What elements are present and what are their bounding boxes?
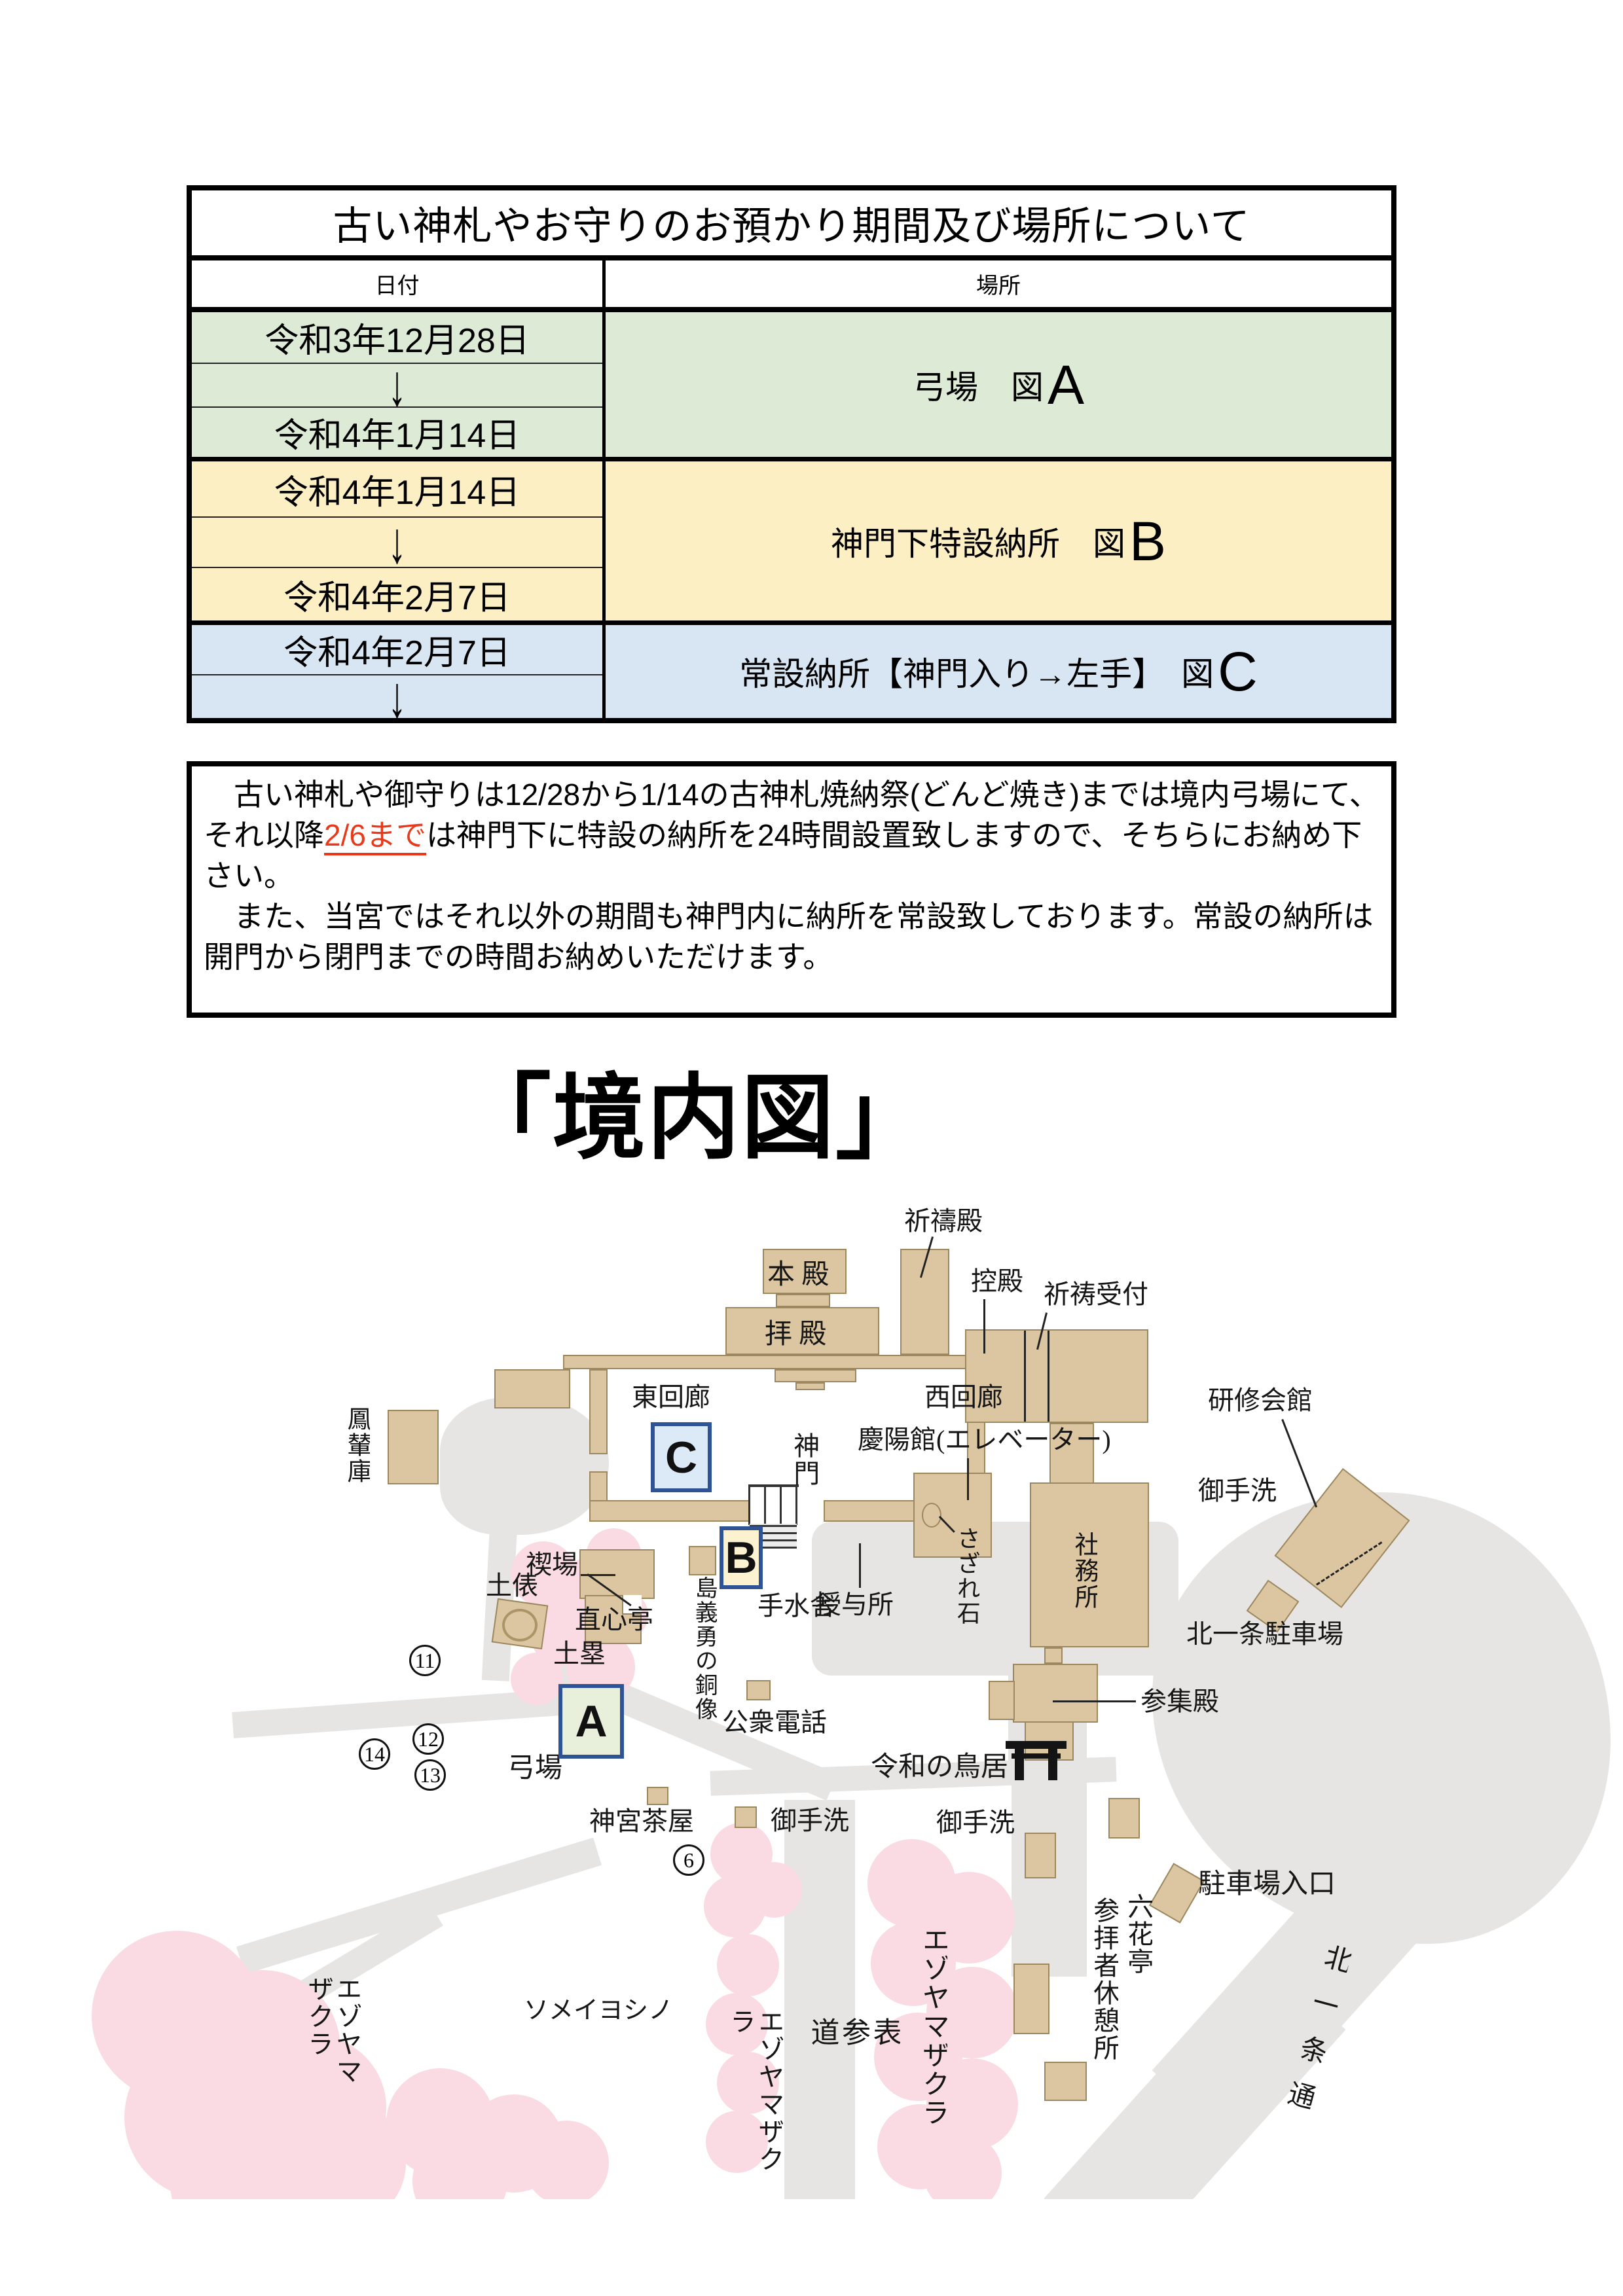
label-nishi-kairo: 西回廊	[924, 1383, 1003, 1411]
label-otearai-east: 御手洗	[1198, 1477, 1277, 1505]
bld-horenko	[388, 1410, 439, 1484]
table-title: 古い神札やお守りのお預かり期間及び場所について	[192, 190, 1391, 260]
bld-sanshuden-1	[1013, 1664, 1098, 1723]
dohyo-ring	[502, 1609, 538, 1641]
bld-corridor-bottom-left	[589, 1500, 775, 1522]
circled-6: 6	[673, 1844, 704, 1876]
page: 古い神札やお守りのお預かり期間及び場所について 日付 場所 令和3年12月28日…	[0, 0, 1623, 2296]
label-otearai-south: 御手洗	[936, 1808, 1015, 1837]
table-header-row: 日付 場所	[192, 260, 1391, 312]
label-honden: 本 殿	[767, 1261, 830, 1290]
bld-corridor-left-upper	[589, 1369, 608, 1454]
date-cell: 令和3年12月28日 ↓ 令和4年1月14日	[192, 312, 606, 457]
circled-14: 14	[359, 1738, 390, 1770]
bld-shamusho-neck	[1044, 1647, 1063, 1664]
deadline-highlight: 2/6まで	[324, 818, 426, 855]
bld-haiden-bump2	[795, 1382, 825, 1390]
bld-haiden-bump	[775, 1369, 856, 1382]
road-plaza-south-2	[1012, 1780, 1087, 1977]
label-jingu-chaya: 神宮茶屋	[589, 1807, 694, 1835]
table-row: 令和4年1月14日 ↓ 令和4年2月7日 神門下特設納所 図B	[192, 461, 1391, 625]
bld-near-torii-2	[1025, 1833, 1056, 1878]
circled-13: 13	[414, 1759, 446, 1791]
bld-corridor-top	[563, 1355, 985, 1369]
bld-otearai-center	[735, 1806, 757, 1828]
leader-juyosho	[859, 1543, 861, 1588]
bld-sanpai-2	[1044, 2062, 1087, 2101]
sazare-stone	[922, 1503, 941, 1528]
label-someiyoshino: ソメイヨシノ	[524, 1998, 673, 2024]
label-haiden: 拝 殿	[765, 1320, 827, 1350]
label-hikaeden: 控殿	[971, 1267, 1023, 1295]
leader-kenshu	[1281, 1419, 1317, 1507]
label-shinmon: 神門	[790, 1432, 818, 1511]
road-west-plaza	[440, 1397, 609, 1535]
bld-near-torii-1	[1108, 1798, 1140, 1839]
label-keiyokan: 慶陽館(エレベーター)	[858, 1426, 1111, 1454]
label-sazareishi: さざれ石	[954, 1526, 979, 1631]
column-header-date: 日付	[192, 260, 606, 307]
label-ezoyama-left: エゾヤマザクラ	[727, 2008, 783, 2199]
grounds-map: 鳳輦庫東回廊西回廊本 殿拝 殿祈禱殿控殿祈祷受付神門慶陽館(エレベーター)授与所…	[79, 1165, 1623, 2199]
date-cell: 令和4年2月7日 ↓	[192, 625, 606, 718]
table-row: 令和4年2月7日 ↓ 常設納所【神門入り→左手】 図C	[192, 625, 1391, 718]
bld-sanpai-1	[1013, 1964, 1049, 2034]
label-horenko: 鳳輦庫	[343, 1406, 370, 1501]
arrow-down-icon: ↓	[192, 516, 602, 567]
label-kenshu-kaikan: 研修会館	[1208, 1386, 1313, 1414]
tree-blob	[524, 2121, 609, 2199]
label-yumiba: 弓場	[507, 1754, 562, 1784]
marker-a: A	[558, 1684, 624, 1759]
tree-blob	[717, 1934, 779, 1996]
label-sanpaisha-kyukeijo: 参拝者休憩所	[1090, 1897, 1118, 2116]
label-sanshuden: 参集殿	[1140, 1687, 1219, 1715]
bld-parking-entry	[1149, 1863, 1205, 1923]
divider-reception-1	[1024, 1331, 1026, 1422]
tree-blob	[704, 1875, 766, 1937]
schedule-table: 古い神札やお守りのお預かり期間及び場所について 日付 場所 令和3年12月28日…	[187, 185, 1396, 723]
circled-12: 12	[412, 1723, 444, 1755]
label-ezoyama-center: エゾヤマザクラ	[918, 1926, 947, 2128]
map-title: 「境内図」	[458, 1042, 930, 1177]
label-higashi-kairo: 東回廊	[632, 1383, 710, 1411]
label-dorui: 土塁	[553, 1640, 606, 1668]
leader-keiyokan	[967, 1458, 969, 1500]
bld-sanshuden-2	[989, 1681, 1015, 1720]
divider-reception-2	[1048, 1331, 1049, 1422]
label-parking-entrance: 駐車場入口	[1198, 1870, 1336, 1899]
notice-paragraph-1: 古い神札や御守りは12/28から1/14の古神札焼納祭(どんど焼き)までは境内弓…	[204, 774, 1379, 896]
road-diag-3	[236, 1838, 602, 1975]
place-text: 神門下特設納所 図	[831, 518, 1125, 565]
bld-chaya	[647, 1787, 668, 1805]
label-shimayoshitake: 島義勇の銅像	[692, 1576, 717, 1730]
label-jikishintei: 直心亭	[575, 1605, 653, 1634]
leader-sanshuden	[1053, 1700, 1136, 1702]
label-misogiba: 禊場	[526, 1551, 578, 1579]
date-cell: 令和4年1月14日 ↓ 令和4年2月7日	[192, 461, 606, 620]
bld-temizusha	[689, 1546, 716, 1575]
arrow-down-icon: ↓	[192, 674, 602, 718]
label-omotesando: 表参道	[807, 2017, 900, 2142]
place-cell: 常設納所【神門入り→左手】 図C	[606, 625, 1391, 718]
notice-paragraph-2: また、当宮ではそれ以外の期間も神門内に納所を常設致しております。常設の納所は開門…	[204, 896, 1379, 977]
figure-letter: C	[1218, 644, 1258, 699]
table-row: 令和3年12月28日 ↓ 令和4年1月14日 弓場 図A	[192, 312, 1391, 461]
place-text: 常設納所【神門入り→左手】 図	[739, 648, 1214, 695]
place-text: 弓場 図	[913, 361, 1044, 408]
label-kitaichijo-parking: 北一条駐車場	[1186, 1620, 1343, 1648]
divider-jikishintei	[581, 1574, 615, 1576]
figure-letter: B	[1129, 514, 1166, 569]
marker-b: B	[720, 1526, 763, 1589]
bld-denwa	[746, 1680, 771, 1700]
label-reiwa-torii: 令和の鳥居	[871, 1753, 1008, 1782]
label-rokkatei: 六花亭	[1124, 1893, 1152, 2004]
label-kitoden: 祈禱殿	[904, 1207, 983, 1235]
figure-letter: A	[1048, 357, 1084, 412]
bld-honden-neck	[776, 1294, 830, 1307]
marker-c: C	[651, 1422, 712, 1492]
leader-hikaeden	[983, 1299, 985, 1354]
notice-box: 古い神札や御守りは12/28から1/14の古神札焼納祭(どんど焼き)までは境内弓…	[187, 761, 1396, 1018]
column-header-place: 場所	[606, 260, 1391, 307]
label-kito-uketsuke: 祈祷受付	[1044, 1280, 1148, 1308]
label-ezoyama-sw: エゾヤマザクラ	[304, 1975, 361, 2093]
place-cell: 弓場 図A	[606, 312, 1391, 457]
torii-icon	[1010, 1741, 1063, 1780]
label-koshu-denwa: 公衆電話	[722, 1708, 827, 1736]
circled-11: 11	[409, 1645, 441, 1676]
label-shamusho: 社務所	[1070, 1532, 1097, 1610]
bld-west-annex	[494, 1369, 570, 1408]
place-cell: 神門下特設納所 図B	[606, 461, 1391, 620]
arrow-down-icon: ↓	[192, 363, 602, 406]
label-temizusha: 手水舎	[757, 1592, 836, 1620]
label-otearai-center: 御手洗	[771, 1806, 849, 1835]
